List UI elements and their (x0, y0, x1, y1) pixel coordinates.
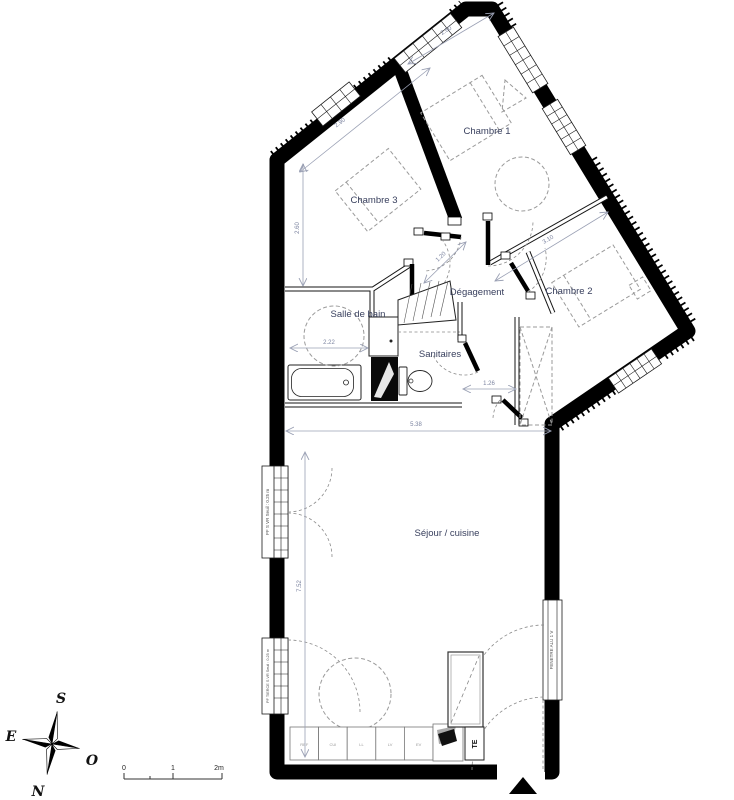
door-chambre-3 (414, 228, 461, 271)
electrical-panel: TE (465, 727, 484, 760)
compass-star (18, 707, 85, 779)
dim-left: 2.60 (295, 222, 301, 234)
compass-north: N (31, 784, 46, 800)
window-left-lower: PF TIERCE S VR Seuil : 0.25 m (262, 638, 288, 714)
scale-zero: 0 (122, 765, 126, 772)
room-label-chambre-2: Chambre 2 (546, 286, 593, 297)
room-label-degagement: Dégagement (450, 287, 505, 298)
floor-plan-svg: PF S VR Seuil : 0.25 m PF TIERCE S VR Se… (0, 0, 734, 800)
entry-closet (520, 327, 552, 425)
room-label-sejour: Séjour / cuisine (415, 528, 480, 539)
window-nw-2 (394, 14, 461, 73)
bathtub (288, 365, 361, 400)
wall-divider-jamb (448, 217, 461, 225)
toilet (399, 367, 432, 395)
scale-two: 2m (214, 765, 224, 772)
wall-teeth-nw (272, 3, 461, 154)
kitchen-tall-cupboard (448, 652, 483, 727)
compass-west: O (86, 753, 99, 769)
dim-line-degagement (424, 242, 466, 283)
kitchen-unit-lv-label: LV (388, 742, 393, 747)
dim-ch2: 3.10 (542, 234, 556, 246)
chair-chambre-1 (502, 80, 526, 112)
kitchen-unit-cui-label: CUI (329, 742, 336, 747)
room-label-sanitaires: Sanitaires (419, 349, 461, 360)
duct-shaft (371, 357, 398, 401)
chair-chambre-2 (495, 157, 549, 211)
compass-south: S (56, 691, 66, 707)
kitchen-unit-ref-label: REF (300, 742, 309, 747)
window-left-upper-label: PF S VR Seuil : 0.25 m (265, 489, 270, 536)
electrical-panel-label: TE (472, 739, 479, 748)
window-right-label: FENETRE ALU 1 V (549, 631, 554, 670)
window-ne-1 (498, 27, 548, 93)
bed-chambre-3 (335, 148, 421, 231)
window-left-upper: PF S VR Seuil : 0.25 m (262, 466, 288, 558)
window-right: FENETRE ALU 1 V (543, 600, 562, 700)
dim-sejour-w: 5.38 (410, 422, 422, 428)
compass-rose: S E O N (5, 691, 99, 800)
floor-plan-page: PF S VR Seuil : 0.25 m PF TIERCE S VR Se… (0, 0, 734, 800)
scale-bar: 0 1 2m (122, 765, 224, 779)
room-label-chambre-3: Chambre 3 (351, 195, 398, 206)
room-label-salle-de-bain: Salle de bain (331, 309, 386, 320)
washbasin-cabinet (369, 317, 398, 356)
entrance-marker (509, 777, 537, 794)
room-label-chambre-1: Chambre 1 (464, 126, 511, 137)
kitchen-unit-ev-label: EV (416, 742, 422, 747)
kitchen-sink-unit (433, 724, 463, 761)
window-left-lower-label: PF TIERCE S VR Seuil : 0.25 m (266, 649, 270, 703)
dim-sejour-h: 7.52 (297, 580, 303, 592)
kitchen-unit-ll-label: LL (359, 742, 364, 747)
wall-teeth-ne (500, 3, 695, 324)
dim-wc: 1.26 (483, 381, 495, 387)
scale-one: 1 (171, 765, 175, 772)
nightstand-chambre-2 (629, 277, 651, 299)
dim-sdb: 2.22 (323, 340, 335, 346)
compass-east: E (5, 729, 17, 745)
scale-bar-line (124, 773, 222, 779)
kitchen: REF CUI LL LV EV TE (290, 652, 484, 761)
wall-divider-ch3-ch1 (398, 64, 456, 220)
dim-line-ch2 (495, 212, 608, 281)
window-ne-2 (542, 99, 586, 154)
table-sejour (319, 658, 391, 730)
door-sejour-passage (492, 396, 528, 426)
